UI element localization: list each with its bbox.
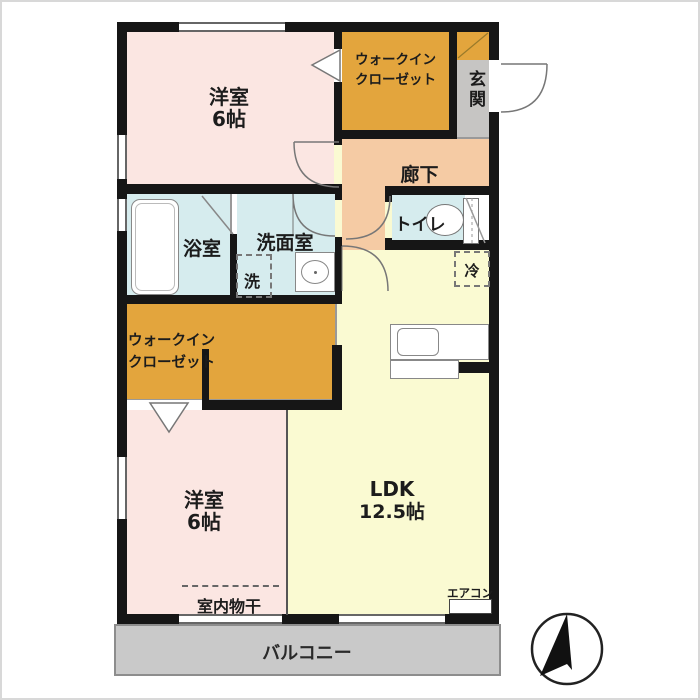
wall <box>334 185 342 194</box>
kitchen-counter-lower <box>390 360 459 379</box>
wall <box>202 400 342 410</box>
wall-right <box>489 22 499 624</box>
aircon-unit <box>449 599 492 614</box>
bathroom-label: 浴室 <box>167 234 237 261</box>
refrigerator-label: 冷 <box>460 260 484 281</box>
wall <box>385 194 392 202</box>
wall <box>125 184 342 194</box>
wall <box>332 345 342 410</box>
balcony-label: バルコニー <box>132 639 482 665</box>
entrance-label: 玄関 <box>463 70 488 110</box>
wall <box>335 237 342 304</box>
kitchen-sink <box>397 328 439 356</box>
wall <box>449 30 457 139</box>
entrance-door-opening <box>489 60 499 112</box>
window <box>117 135 127 179</box>
wall-thin <box>335 304 337 345</box>
hallway-label: 廊下 <box>372 160 467 187</box>
wic-top-label: ウォークイン クローゼット <box>342 50 449 90</box>
indoor-drying-label: 室内物干 <box>180 593 278 617</box>
vanity-drain-dot <box>314 271 317 274</box>
ldk-label: LDK 12.5帖 <box>302 478 482 524</box>
floor-plan: 洋室 6帖 ウォークイン クローゼット 玄関 廊下 浴室 洗面室 洗 トイレ 冷… <box>0 0 700 700</box>
wall <box>339 130 457 139</box>
wall <box>385 238 392 250</box>
wall <box>334 30 342 49</box>
room-hallway-strip <box>342 194 385 250</box>
wall <box>385 240 499 250</box>
bedroom-top-label: 洋室 6帖 <box>129 86 329 130</box>
wall <box>385 186 499 195</box>
wall-thin <box>230 194 232 234</box>
wall-left <box>117 22 127 624</box>
wall-top <box>117 22 499 32</box>
washroom-label: 洗面室 <box>248 228 322 255</box>
wall-kitchen-stub <box>459 362 495 373</box>
toilet-label: トイレ <box>386 210 454 235</box>
wic-middle-label: ウォークイン クローゼット <box>128 330 252 374</box>
toilet-tank <box>463 198 479 244</box>
window <box>117 199 127 231</box>
aircon-label: エアコン <box>442 585 498 601</box>
window <box>179 22 285 32</box>
entrance-step-line <box>457 137 489 139</box>
compass-north-icon <box>526 608 608 690</box>
wall <box>334 82 342 145</box>
entrance-shoe-area <box>457 30 489 60</box>
indoor-drying-line <box>182 585 279 587</box>
window <box>339 614 445 624</box>
bedroom-bottom-label: 洋室 6帖 <box>104 489 304 533</box>
wall <box>335 194 342 200</box>
laundry-label: 洗 <box>239 268 265 292</box>
